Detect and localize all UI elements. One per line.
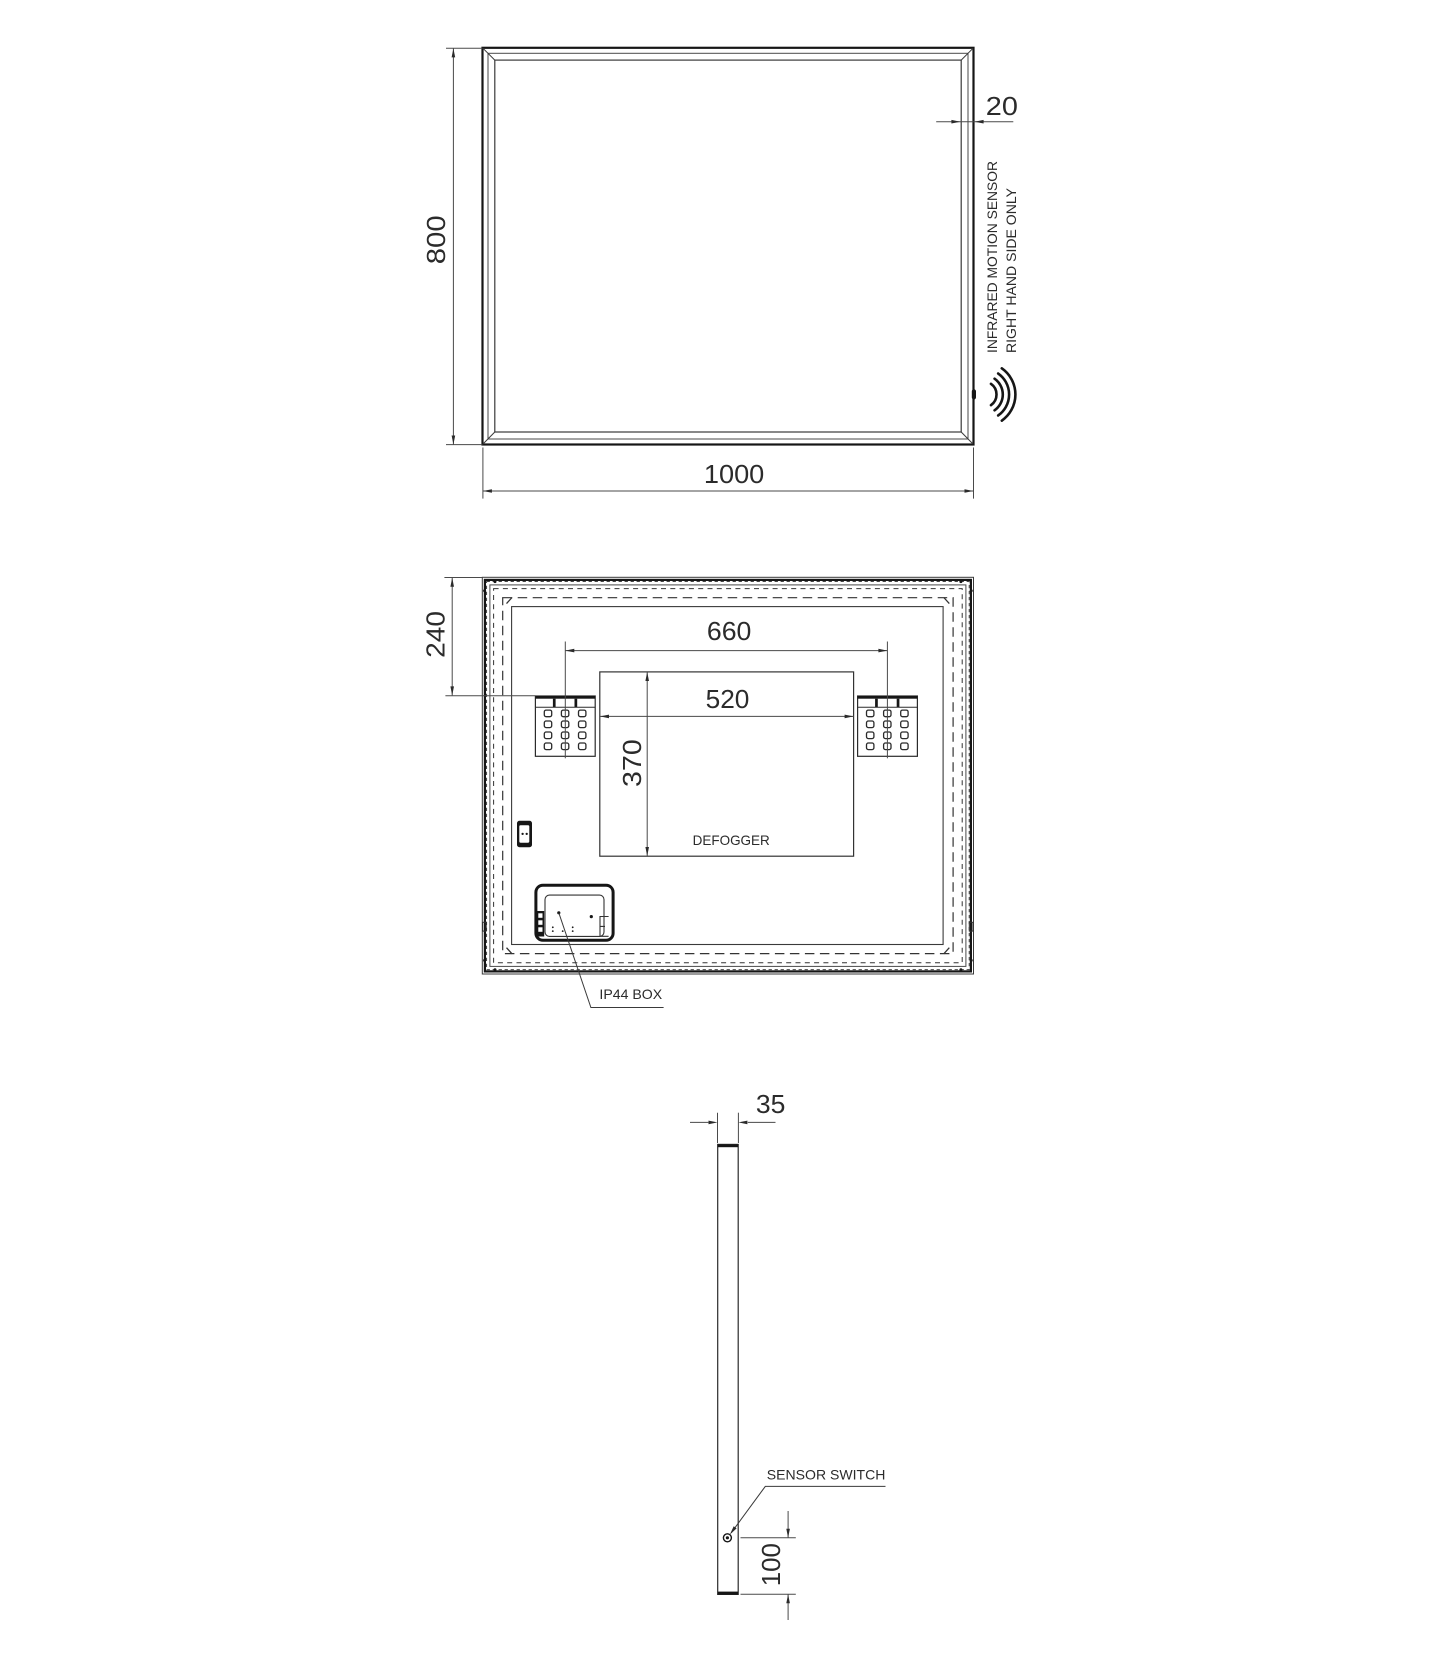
svg-text:INFRARED MOTION SENSOR: INFRARED MOTION SENSOR xyxy=(984,161,1000,353)
svg-text:RIGHT HAND SIDE ONLY: RIGHT HAND SIDE ONLY xyxy=(1003,187,1019,353)
svg-text:35: 35 xyxy=(756,1089,786,1119)
svg-text:520: 520 xyxy=(706,684,750,714)
svg-text:IP44 BOX: IP44 BOX xyxy=(599,986,662,1002)
svg-text:1000: 1000 xyxy=(704,459,764,489)
svg-text:100: 100 xyxy=(756,1543,786,1586)
svg-text:240: 240 xyxy=(420,611,450,658)
svg-text:370: 370 xyxy=(617,739,647,787)
svg-text:DEFOGGER: DEFOGGER xyxy=(693,832,770,848)
svg-text:20: 20 xyxy=(986,91,1018,121)
svg-text:660: 660 xyxy=(707,616,752,646)
svg-text:SENSOR SWITCH: SENSOR SWITCH xyxy=(767,1467,886,1483)
svg-text:800: 800 xyxy=(421,215,451,264)
